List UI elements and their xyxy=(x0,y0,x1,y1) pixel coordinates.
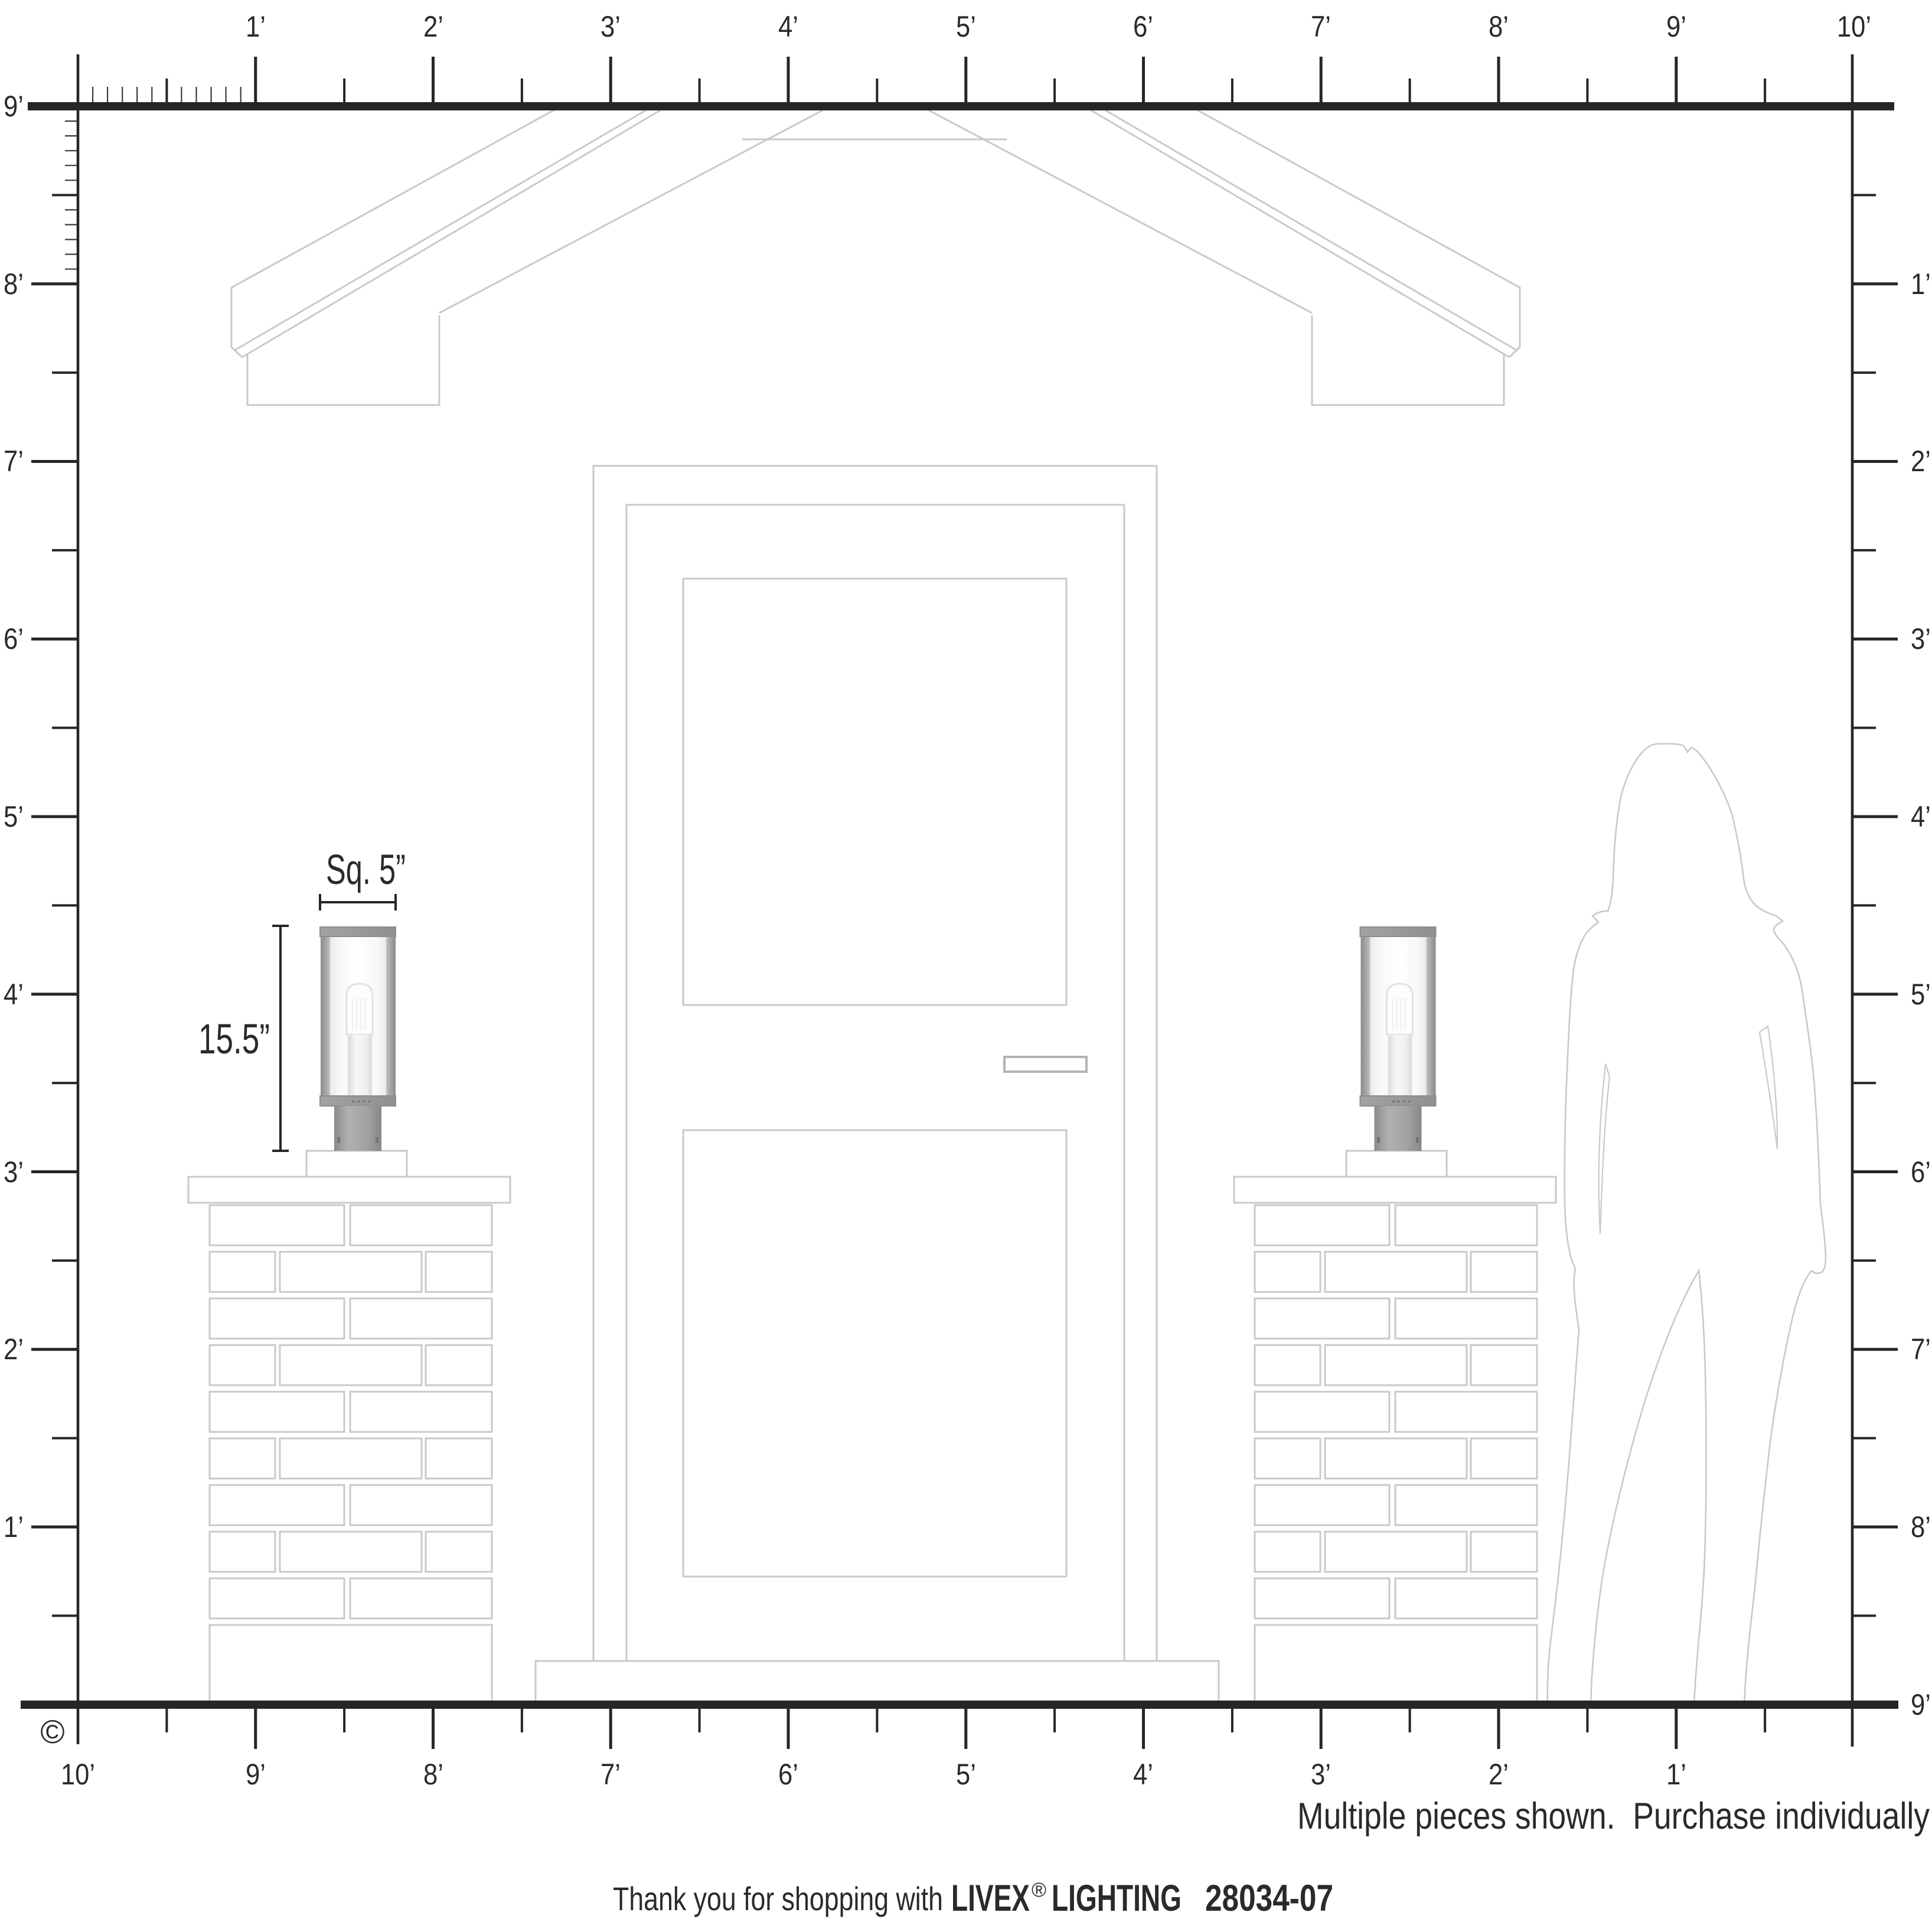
svg-text:Multiple pieces shown. Purcha: Multiple pieces shown. Purchase individu… xyxy=(1297,1796,1930,1837)
svg-text:Sq. 5”: Sq. 5” xyxy=(326,847,406,893)
svg-text:1’: 1’ xyxy=(1666,1758,1686,1791)
svg-text:©: © xyxy=(40,1713,64,1750)
svg-text:1’: 1’ xyxy=(246,10,266,43)
svg-text:6’: 6’ xyxy=(1911,1156,1931,1189)
svg-text:28034-07: 28034-07 xyxy=(1205,1878,1333,1919)
svg-text:LIVEX: LIVEX xyxy=(951,1878,1030,1919)
svg-text:3’: 3’ xyxy=(601,10,621,43)
svg-text:4’: 4’ xyxy=(778,10,798,43)
svg-text:3’: 3’ xyxy=(4,1156,24,1189)
svg-text:3’: 3’ xyxy=(1911,622,1931,655)
svg-text:9’: 9’ xyxy=(1911,1688,1931,1721)
svg-text:5’: 5’ xyxy=(956,1758,976,1791)
svg-text:10’: 10’ xyxy=(1837,10,1871,43)
svg-text:8’: 8’ xyxy=(423,1758,443,1791)
svg-text:1’: 1’ xyxy=(1911,267,1931,301)
svg-text:4’: 4’ xyxy=(1911,800,1931,833)
svg-text:5’: 5’ xyxy=(956,10,976,43)
svg-text:1’: 1’ xyxy=(4,1510,24,1543)
svg-text:Thank you for shopping with: Thank you for shopping with xyxy=(613,1880,943,1917)
svg-text:3’: 3’ xyxy=(1311,1758,1331,1791)
svg-text:8’: 8’ xyxy=(1911,1510,1931,1543)
svg-text:5’: 5’ xyxy=(1911,978,1931,1011)
svg-text:2’: 2’ xyxy=(4,1333,24,1366)
svg-text:®: ® xyxy=(1032,1879,1046,1901)
svg-text:8’: 8’ xyxy=(4,267,24,301)
svg-text:7’: 7’ xyxy=(1911,1333,1931,1366)
svg-text:2’: 2’ xyxy=(1489,1758,1509,1791)
svg-text:6’: 6’ xyxy=(778,1758,798,1791)
svg-text:9’: 9’ xyxy=(1666,10,1686,43)
svg-text:6’: 6’ xyxy=(1133,10,1153,43)
svg-text:10’: 10’ xyxy=(61,1758,95,1791)
svg-text:7’: 7’ xyxy=(1311,10,1331,43)
svg-text:4’: 4’ xyxy=(4,978,24,1011)
svg-text:8’: 8’ xyxy=(1489,10,1509,43)
svg-text:15.5”: 15.5” xyxy=(198,1016,270,1063)
svg-text:9’: 9’ xyxy=(246,1758,266,1791)
svg-text:2’: 2’ xyxy=(1911,445,1931,478)
svg-text:LIGHTING: LIGHTING xyxy=(1052,1878,1182,1919)
svg-text:9’: 9’ xyxy=(4,90,24,123)
svg-text:5’: 5’ xyxy=(4,800,24,833)
svg-text:2’: 2’ xyxy=(423,10,443,43)
svg-text:4’: 4’ xyxy=(1133,1758,1153,1791)
svg-text:7’: 7’ xyxy=(601,1758,621,1791)
svg-text:7’: 7’ xyxy=(4,445,24,478)
svg-text:6’: 6’ xyxy=(4,622,24,655)
